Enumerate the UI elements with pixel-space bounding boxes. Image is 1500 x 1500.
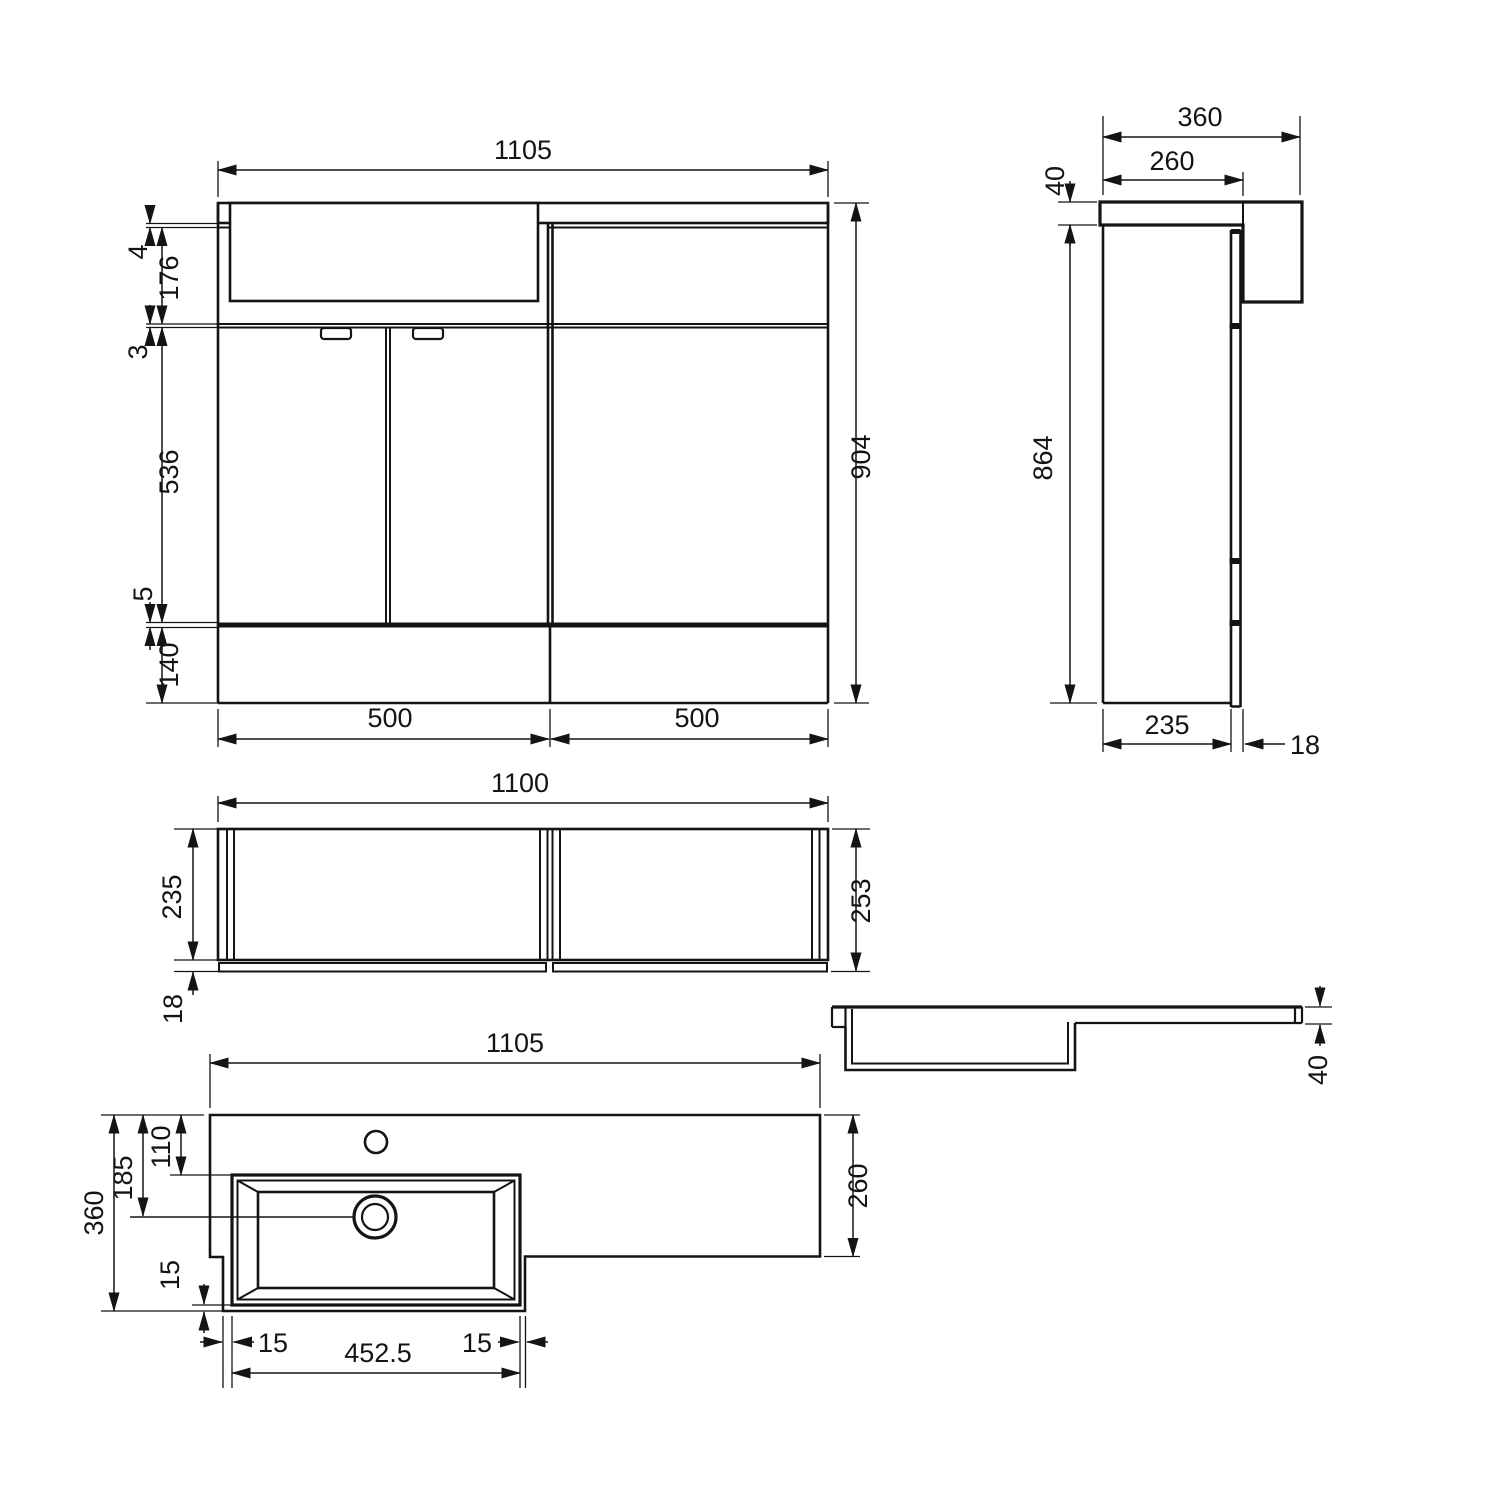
plan-right-door-edge (553, 963, 827, 972)
dim-front-apron-height: 176 (154, 255, 184, 300)
dim-side-carcass-depth: 235 (1144, 710, 1189, 740)
dim-front-counter-lip: 4 (123, 244, 153, 259)
front-width-extension-lines (218, 161, 828, 197)
dim-plan-overall-width: 1100 (491, 768, 549, 798)
counter-section-dimensions: 40 (1303, 986, 1333, 1085)
front-left-door-handle (321, 328, 351, 339)
dim-plan-overall-depth: 253 (846, 878, 876, 923)
dim-side-carcass-height: 864 (1028, 435, 1058, 480)
dim-plan-door-thickness: 18 (158, 994, 188, 1024)
dim-front-gap-top: 3 (123, 344, 153, 359)
dim-cplan-basin-length: 452.5 (344, 1338, 412, 1368)
dim-cplan-rim-right: 15 (462, 1328, 492, 1358)
section-thickness-extension-lines (1305, 1007, 1332, 1024)
side-counter-and-apron (1100, 202, 1302, 302)
dim-plan-internal-depth: 235 (157, 874, 187, 919)
front-door-divider (386, 328, 390, 626)
dim-front-plinth-height: 140 (154, 642, 184, 687)
front-right-door-handle (413, 328, 443, 339)
dim-cplan-drain-offset: 185 (108, 1155, 138, 1200)
drain-hole-inner (362, 1204, 388, 1230)
dim-front-overall-height: 904 (846, 434, 876, 479)
dim-front-left-section: 500 (367, 703, 412, 733)
dim-section-counter-thickness: 40 (1303, 1055, 1333, 1085)
dim-front-door-height: 536 (154, 449, 184, 494)
cplan-width-extension-lines (210, 1054, 820, 1108)
counter-plan-view (130, 1115, 820, 1311)
counter-section-view (832, 1007, 1302, 1070)
dim-cplan-rim-left: 15 (258, 1328, 288, 1358)
dim-side-wc-depth: 260 (1149, 146, 1194, 176)
dim-cplan-rim-front: 15 (155, 1260, 185, 1290)
front-basin-apron (230, 203, 538, 301)
side-view (1100, 202, 1302, 707)
section-basin-tub-inner (852, 1009, 1068, 1064)
plan-width-extension-lines (218, 796, 828, 822)
drawing-sheet: 1105 4 176 3 536 5 140 904 500 500 (0, 0, 1500, 1500)
tap-hole (365, 1131, 387, 1153)
dim-front-gap-bottom: 5 (128, 586, 158, 601)
plan-left-door-edge (219, 963, 546, 972)
dim-side-counter-depth: 360 (1177, 102, 1222, 132)
front-view (218, 203, 828, 703)
side-door-mark-1 (1230, 323, 1242, 329)
dim-cplan-overall-width: 1105 (486, 1028, 544, 1058)
vanity-technical-drawing: 1105 4 176 3 536 5 140 904 500 500 (0, 0, 1500, 1500)
side-door-mark-3 (1230, 620, 1242, 626)
front-top-rail-lines (218, 324, 828, 328)
front-bottom-extension-lines (218, 709, 828, 747)
dim-side-counter-thickness: 40 (1040, 166, 1070, 196)
dim-front-overall-width: 1105 (494, 135, 552, 165)
dim-front-right-section: 500 (674, 703, 719, 733)
plan-carcass-outline (218, 829, 828, 960)
front-center-junction (548, 223, 553, 625)
side-carcass-outline (1103, 225, 1231, 703)
dim-cplan-overall-depth: 360 (79, 1190, 109, 1235)
carcass-plan-view (218, 829, 828, 972)
section-front-lip (832, 1007, 846, 1027)
dim-cplan-tap-offset: 110 (146, 1125, 176, 1168)
dim-side-door-thickness: 18 (1290, 730, 1320, 760)
dim-cplan-right-depth: 260 (843, 1163, 873, 1208)
side-thickness-extension-lines (1058, 202, 1097, 225)
section-counter-end-cap (1295, 1007, 1302, 1023)
side-door-panel (1231, 230, 1241, 707)
side-door-mark-2 (1230, 558, 1242, 564)
